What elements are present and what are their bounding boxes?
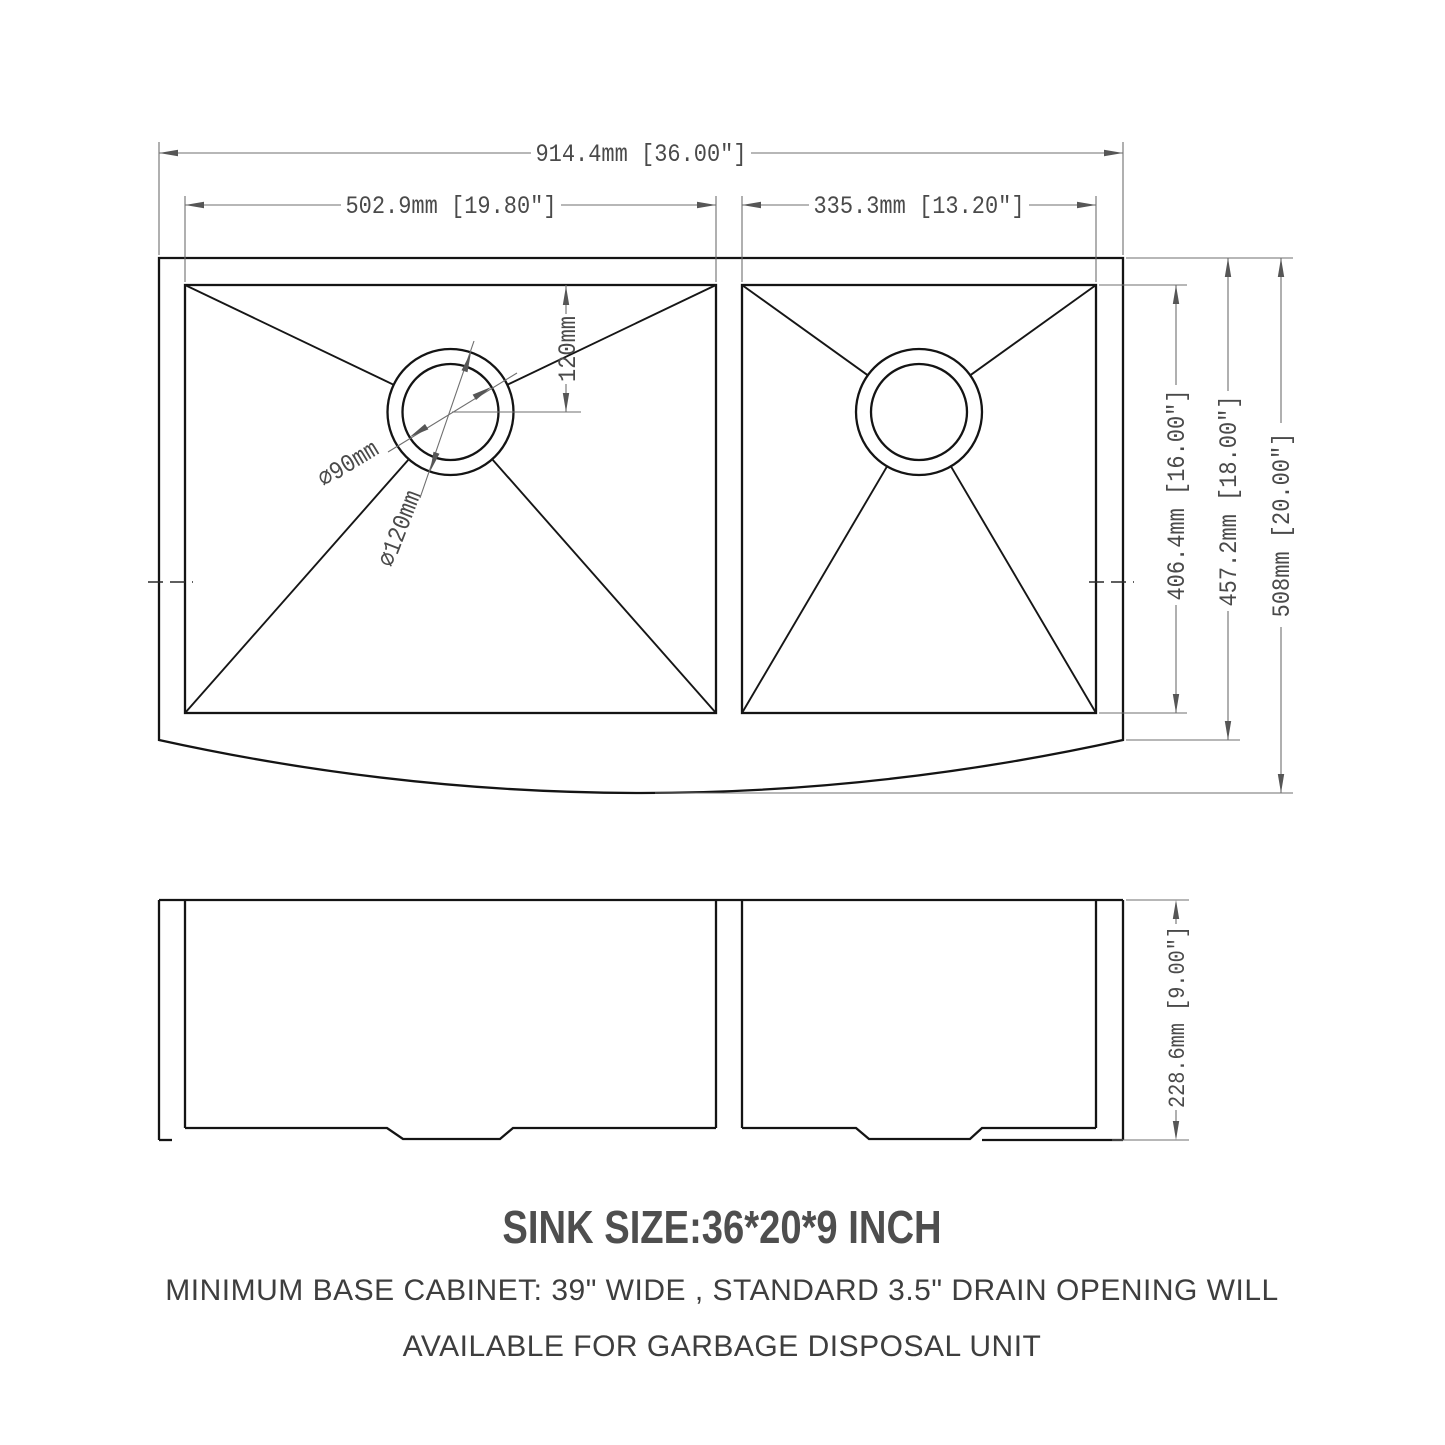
dim-drain-offset: 120mm [555,316,584,382]
dim-bowl-depth: 406.4mm [16.00"] [1164,389,1193,600]
note-line-2: AVAILABLE FOR GARBAGE DISPOSAL UNIT [403,1330,1042,1363]
dim-overall-width: 914.4mm [36.00"] [535,141,746,170]
dim-body-depth: 457.2mm [18.00"] [1216,395,1245,606]
spec-notes: SINK SIZE:36*20*9 INCH MINIMUM BASE CABI… [165,1202,1278,1363]
sink-size-title: SINK SIZE:36*20*9 INCH [502,1202,941,1253]
top-view-dimensions: 914.4mm [36.00"] 502.9mm [19.80"] 335.3m… [159,141,1297,793]
front-right-bowl [742,900,1096,1139]
sink-spec-sheet: 914.4mm [36.00"] 502.9mm [19.80"] 335.3m… [0,0,1445,1445]
right-drain-inner [871,364,967,460]
dim-drain-inner-dia: ∅90mm [313,436,384,495]
right-drain-outer [856,349,982,475]
bowl-slope-lines [185,285,1096,713]
technical-drawing: 914.4mm [36.00"] 502.9mm [19.80"] 335.3m… [0,0,1445,1445]
dim-left-bowl-width: 502.9mm [19.80"] [345,193,556,222]
dim-drain-outer-dia: ∅120mm [374,487,429,571]
front-view: 228.6mm [9.00"] [159,900,1191,1140]
front-left-bowl [185,900,716,1139]
top-view: 914.4mm [36.00"] 502.9mm [19.80"] 335.3m… [148,141,1297,793]
dim-right-bowl-width: 335.3mm [13.20"] [813,193,1024,222]
dim-sink-height: 228.6mm [9.00"] [1165,926,1192,1108]
dim-overall-depth: 508mm [20.00"] [1269,433,1298,618]
note-line-1: MINIMUM BASE CABINET: 39" WIDE , STANDAR… [165,1274,1278,1307]
